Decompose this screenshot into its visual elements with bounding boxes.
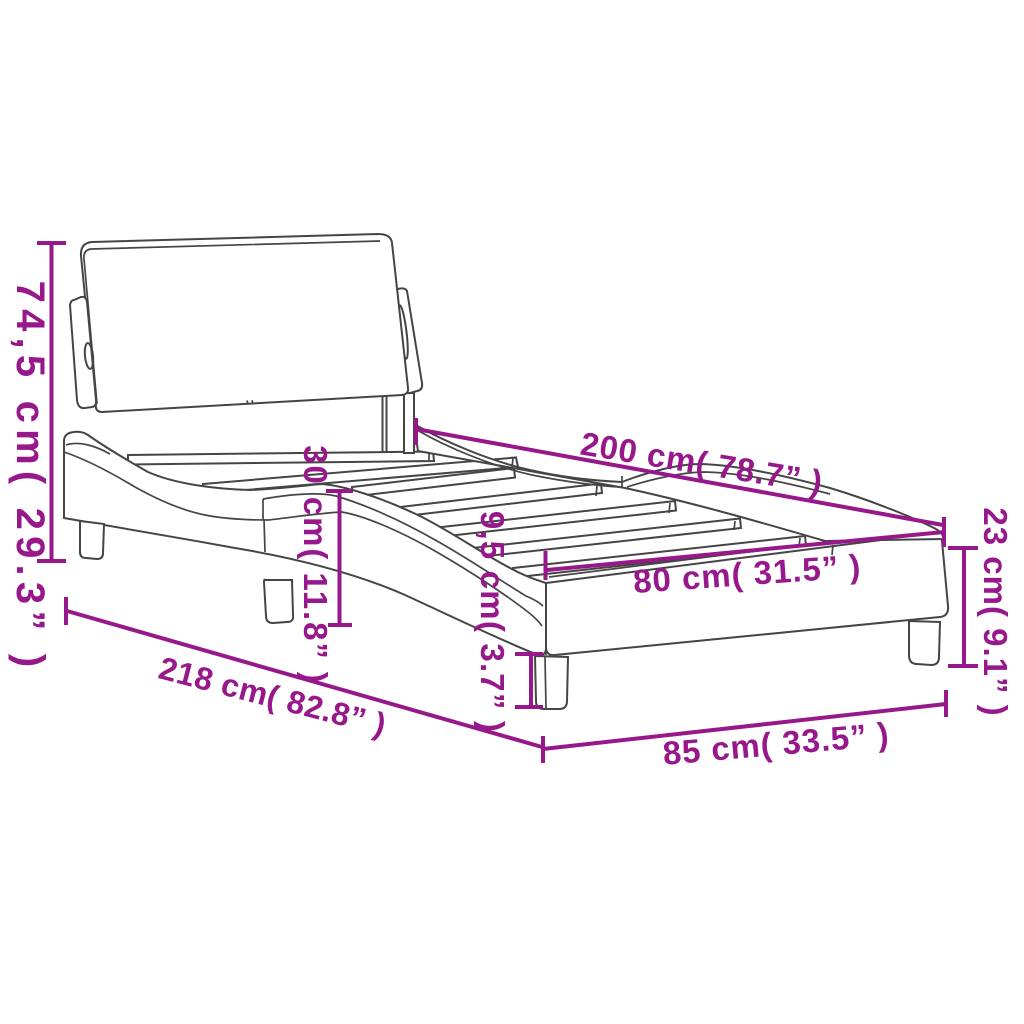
svg-text:9,5 cm( 3.7” ): 9,5 cm( 3.7” ) (474, 511, 511, 733)
svg-text:30 cm( 11.8” ): 30 cm( 11.8” ) (297, 445, 334, 684)
svg-text:23 cm( 9.1” ): 23 cm( 9.1” ) (977, 507, 1014, 716)
svg-text:74,5 cm( 29.3” ): 74,5 cm( 29.3” ) (8, 281, 52, 674)
